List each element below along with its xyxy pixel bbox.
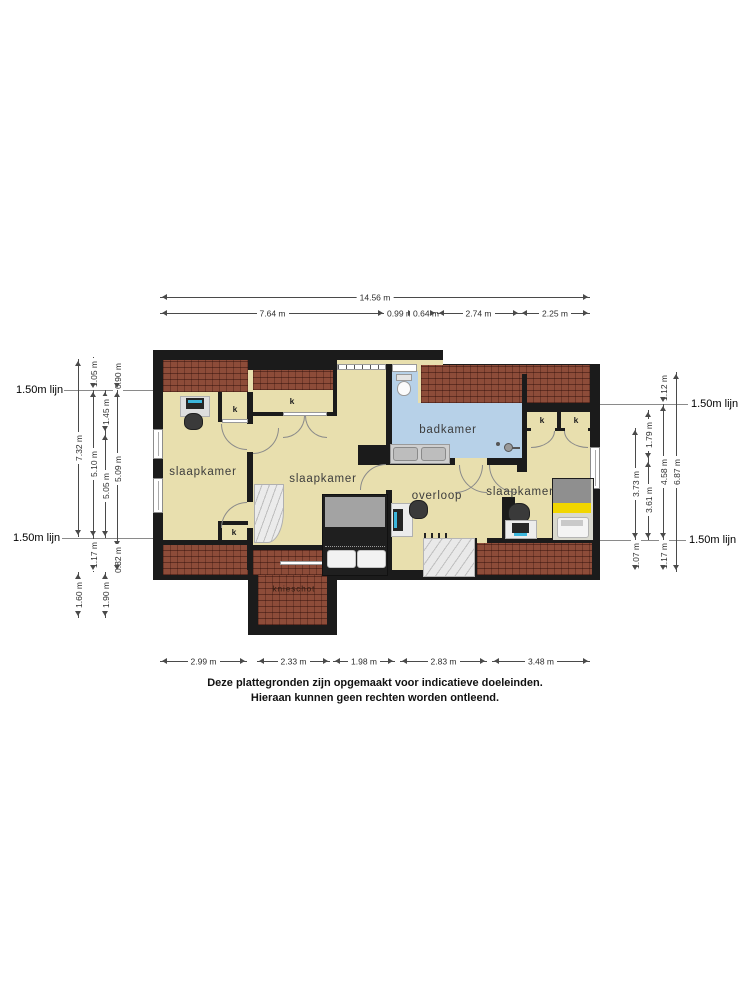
roof-slope-top-middle [253,370,333,390]
ref-label-right-bottom: 1.50m lijn [689,534,736,546]
dim-right-c2-a: 1.79 m [648,410,649,460]
dormer-window-sill [337,364,386,370]
chimney-block [358,445,392,465]
disclaimer-line-1: Deze plattegronden zijn opgemaakt voor i… [0,676,750,691]
ref-label-right-top: 1.50m lijn [691,398,738,410]
knieschot-area [258,575,327,625]
bathroom-right-wall [522,374,527,458]
closet1-door-sill [222,419,248,423]
roof-slope-bottom-left [163,545,248,575]
roof-slope-top-right [421,365,590,403]
screen-landing [394,512,397,528]
bathroom-corner-post [517,458,527,472]
closet-label-1: k [233,404,238,414]
wall-middle-bathroom-divider [386,364,392,445]
room-label-bedroom-right: slaapkamer [486,486,553,498]
dim-right-c3-a: 1.12 m [663,372,664,404]
dim-left-c2-b: 5.10 m [93,390,94,538]
dim-right-c2-b: 3.61 m [648,460,649,540]
wall-top-middle-thick [248,350,337,370]
sink-1 [393,447,418,461]
floor-plan-page: slaapkamer slaapkamer badkamer overloop … [0,0,750,1000]
closet-label-5: k [232,527,237,537]
single-bed-head [553,479,591,503]
shower-control-dot [496,442,500,446]
room-label-bathroom: badkamer [419,424,477,436]
right-closets-top-strip [523,403,592,412]
room-label-landing: overloop [412,490,463,502]
closet-label-2: k [290,396,295,406]
shower-arm [512,447,520,449]
single-bed-icon [552,478,594,541]
closet-label-3: k [540,415,545,425]
room-label-knieschot: knieschot [273,585,316,594]
wall-left-divider-b [247,452,253,502]
knieschot-threshold [280,561,327,565]
chair-left-bedroom [184,413,203,430]
bed-pillow-2 [357,550,386,568]
dim-bottom-seg-5: 3.48 m [492,661,590,662]
bed-dashed-line [325,546,385,547]
dim-right-c3-b: 4.58 m [663,404,664,540]
dim-left-c4-a: 0.90 m [117,362,118,390]
double-bed-icon [322,494,388,576]
main-stairs-icon [423,538,475,577]
dim-bottom-seg-2: 2.33 m [257,661,330,662]
shell-step-notch [443,350,603,364]
right-closets-bottom-c [588,428,592,431]
screen-left-bedroom [188,400,202,403]
sink-2 [421,447,446,461]
dim-right-c1-b: 1.07 m [635,540,636,572]
ref-label-left-top: 1.50m lijn [16,384,63,396]
monitor-right-bedroom [512,523,529,533]
stairs-balusters [424,533,448,538]
dim-left-c4-c: 0.82 m [117,548,118,572]
toilet-bowl [397,381,411,396]
dim-left-c4-b: 5.09 m [117,390,118,548]
ref-line-right-top [600,404,688,405]
right-closets-bottom-a [523,428,531,431]
dim-right-c4: 6.87 m [676,372,677,572]
ref-label-left-bottom: 1.50m lijn [13,532,60,544]
wall-bottom-left-room [163,540,253,545]
single-bed-footpad [557,517,589,538]
roof-slope-bottom-right [477,543,592,575]
bathroom-window-shelf [392,364,417,372]
dim-left-c1-a: 7.32 m [78,359,79,537]
dim-left-c3-b: 5.05 m [105,433,106,538]
dim-left-c3-a: 1.45 m [105,390,106,433]
bed-pillow-1 [327,550,356,568]
dim-left-c2-c: 1.17 m [93,538,94,572]
chair-landing [409,500,428,519]
dim-top-seg-1: 7.64 m [160,313,385,314]
closet-mid-bottom-a [253,412,283,416]
bathroom-bottom-wall-b [487,458,517,465]
wall-bottom-middle-room [253,545,333,550]
dim-top-seg-3: 0.64 m [415,313,437,314]
dim-bottom-seg-3: 1.98 m [333,661,395,662]
knieschot-wall-bottom [248,625,337,635]
closet1-side-wall [218,392,222,422]
dim-left-c2-a: 1.05 m [93,357,94,390]
dim-right-c1-a: 3.73 m [635,428,636,540]
toilet-icon [396,374,412,381]
disclaimer-text: Deze plattegronden zijn opgemaakt voor i… [0,676,750,706]
disclaimer-line-2: Hieraan kunnen geen rechten worden ontle… [0,691,750,706]
roof-slope-top-left [163,360,248,392]
ref-line-right-bottom [600,540,686,541]
screen-right-bedroom [514,533,527,536]
dim-top-seg-5: 2.25 m [520,313,590,314]
single-bed-yellow-band [553,503,591,513]
dim-left-c3-c: 1.90 m [105,572,106,618]
dim-bottom-seg-1: 2.99 m [160,661,247,662]
window-left-2 [153,478,163,513]
dim-bottom-seg-4: 2.83 m [400,661,487,662]
room-label-bedroom-left: slaapkamer [169,466,236,478]
dim-top-total: 14.56 m [160,297,590,298]
closet-mid-side-wall [333,370,337,416]
closet-label-4: k [574,415,579,425]
dim-left-c1-b: 1.60 m [78,572,79,618]
window-left-1 [153,429,163,459]
room-label-bedroom-middle: slaapkamer [289,473,356,485]
dim-top-seg-4: 2.74 m [437,313,520,314]
bed-duvet [325,497,385,527]
dim-right-c3-c: 1.17 m [663,540,664,572]
